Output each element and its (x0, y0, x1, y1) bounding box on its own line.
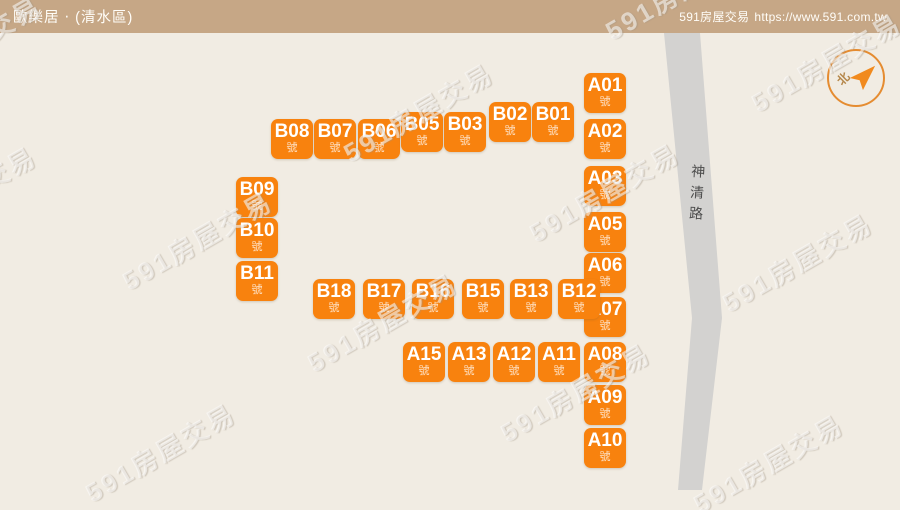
lot-suffix: 號 (600, 96, 611, 109)
lot-A15[interactable]: A15號 (403, 342, 445, 382)
lot-code: A03 (588, 168, 623, 189)
lot-suffix: 號 (600, 235, 611, 248)
lot-suffix: 號 (252, 284, 263, 297)
lot-code: B15 (466, 281, 501, 302)
lot-A09[interactable]: A09號 (584, 385, 626, 425)
lot-suffix: 號 (600, 142, 611, 155)
lot-suffix: 號 (505, 125, 516, 138)
lot-suffix: 號 (287, 142, 298, 155)
lot-code: A09 (588, 387, 623, 408)
lot-code: A01 (588, 75, 623, 96)
lot-code: A08 (588, 344, 623, 365)
lot-suffix: 號 (379, 302, 390, 315)
lot-suffix: 號 (419, 365, 430, 378)
lot-B17[interactable]: B17號 (363, 279, 405, 319)
lot-A05[interactable]: A05號 (584, 212, 626, 252)
lot-B16[interactable]: B16號 (412, 279, 454, 319)
lot-B18[interactable]: B18號 (313, 279, 355, 319)
lot-B08[interactable]: B08號 (271, 119, 313, 159)
lot-A02[interactable]: A02號 (584, 119, 626, 159)
lot-code: B17 (367, 281, 402, 302)
lot-A03[interactable]: A03號 (584, 166, 626, 206)
lot-suffix: 號 (526, 302, 537, 315)
brand-url: 591房屋交易 https://www.591.com.tw (679, 8, 887, 25)
lot-suffix: 號 (374, 142, 385, 155)
lot-code: A13 (452, 344, 487, 365)
lot-code: B07 (318, 121, 353, 142)
lot-B13[interactable]: B13號 (510, 279, 552, 319)
lot-B12[interactable]: B12號 (558, 279, 600, 319)
community-title: 歐樂居 ‧ (清水區) (13, 6, 133, 27)
lot-suffix: 號 (330, 142, 341, 155)
lot-A01[interactable]: A01號 (584, 73, 626, 113)
lot-B05[interactable]: B05號 (401, 112, 443, 152)
lot-A11[interactable]: A11號 (538, 342, 580, 382)
brand-name: 591房屋交易 (679, 8, 749, 25)
lot-A13[interactable]: A13號 (448, 342, 490, 382)
lot-B10[interactable]: B10號 (236, 218, 278, 258)
lot-code: A05 (588, 214, 623, 235)
lot-code: B02 (493, 104, 528, 125)
lot-suffix: 號 (252, 241, 263, 254)
lot-suffix: 號 (600, 276, 611, 289)
lot-suffix: 號 (600, 365, 611, 378)
lot-suffix: 號 (478, 302, 489, 315)
lots-layer: A01號A02號A03號A05號A06號A07號A08號A09號A10號B08號… (0, 0, 900, 510)
site-map-page: 歐樂居 ‧ (清水區) 591房屋交易 https://www.591.com.… (0, 0, 900, 510)
lot-suffix: 號 (460, 135, 471, 148)
lot-B09[interactable]: B09號 (236, 177, 278, 217)
lot-code: B12 (562, 281, 597, 302)
lot-suffix: 號 (600, 320, 611, 333)
compass-arrow-icon (847, 61, 877, 93)
brand-link: https://www.591.com.tw (754, 10, 887, 24)
lot-B03[interactable]: B03號 (444, 112, 486, 152)
lot-code: B16 (416, 281, 451, 302)
lot-suffix: 號 (464, 365, 475, 378)
lot-suffix: 號 (600, 408, 611, 421)
lot-code: B09 (240, 179, 275, 200)
lot-B07[interactable]: B07號 (314, 119, 356, 159)
lot-suffix: 號 (417, 135, 428, 148)
title-bar: 歐樂居 ‧ (清水區) 591房屋交易 https://www.591.com.… (0, 0, 900, 33)
lot-B06[interactable]: B06號 (358, 119, 400, 159)
lot-code: A15 (407, 344, 442, 365)
lot-suffix: 號 (252, 200, 263, 213)
lot-code: A10 (588, 430, 623, 451)
lot-code: B13 (514, 281, 549, 302)
lot-suffix: 號 (509, 365, 520, 378)
lot-code: B10 (240, 220, 275, 241)
lot-suffix: 號 (428, 302, 439, 315)
lot-code: B03 (448, 114, 483, 135)
lot-suffix: 號 (600, 189, 611, 202)
lot-B15[interactable]: B15號 (462, 279, 504, 319)
lot-code: B08 (275, 121, 310, 142)
lot-code: A11 (542, 344, 576, 365)
lot-suffix: 號 (329, 302, 340, 315)
lot-code: B06 (362, 121, 397, 142)
lot-A12[interactable]: A12號 (493, 342, 535, 382)
lot-code: B05 (405, 114, 440, 135)
lot-code: A06 (588, 255, 623, 276)
compass: 北 (827, 49, 885, 107)
lot-code: A12 (497, 344, 532, 365)
lot-suffix: 號 (548, 125, 559, 138)
lot-code: A02 (588, 121, 623, 142)
lot-suffix: 號 (574, 302, 585, 315)
lot-code: B01 (536, 104, 571, 125)
lot-suffix: 號 (600, 451, 611, 464)
lot-B11[interactable]: B11號 (236, 261, 278, 301)
lot-code: B11 (240, 263, 274, 284)
lot-B02[interactable]: B02號 (489, 102, 531, 142)
lot-A08[interactable]: A08號 (584, 342, 626, 382)
lot-A10[interactable]: A10號 (584, 428, 626, 468)
lot-B01[interactable]: B01號 (532, 102, 574, 142)
lot-suffix: 號 (554, 365, 565, 378)
lot-code: B18 (317, 281, 352, 302)
